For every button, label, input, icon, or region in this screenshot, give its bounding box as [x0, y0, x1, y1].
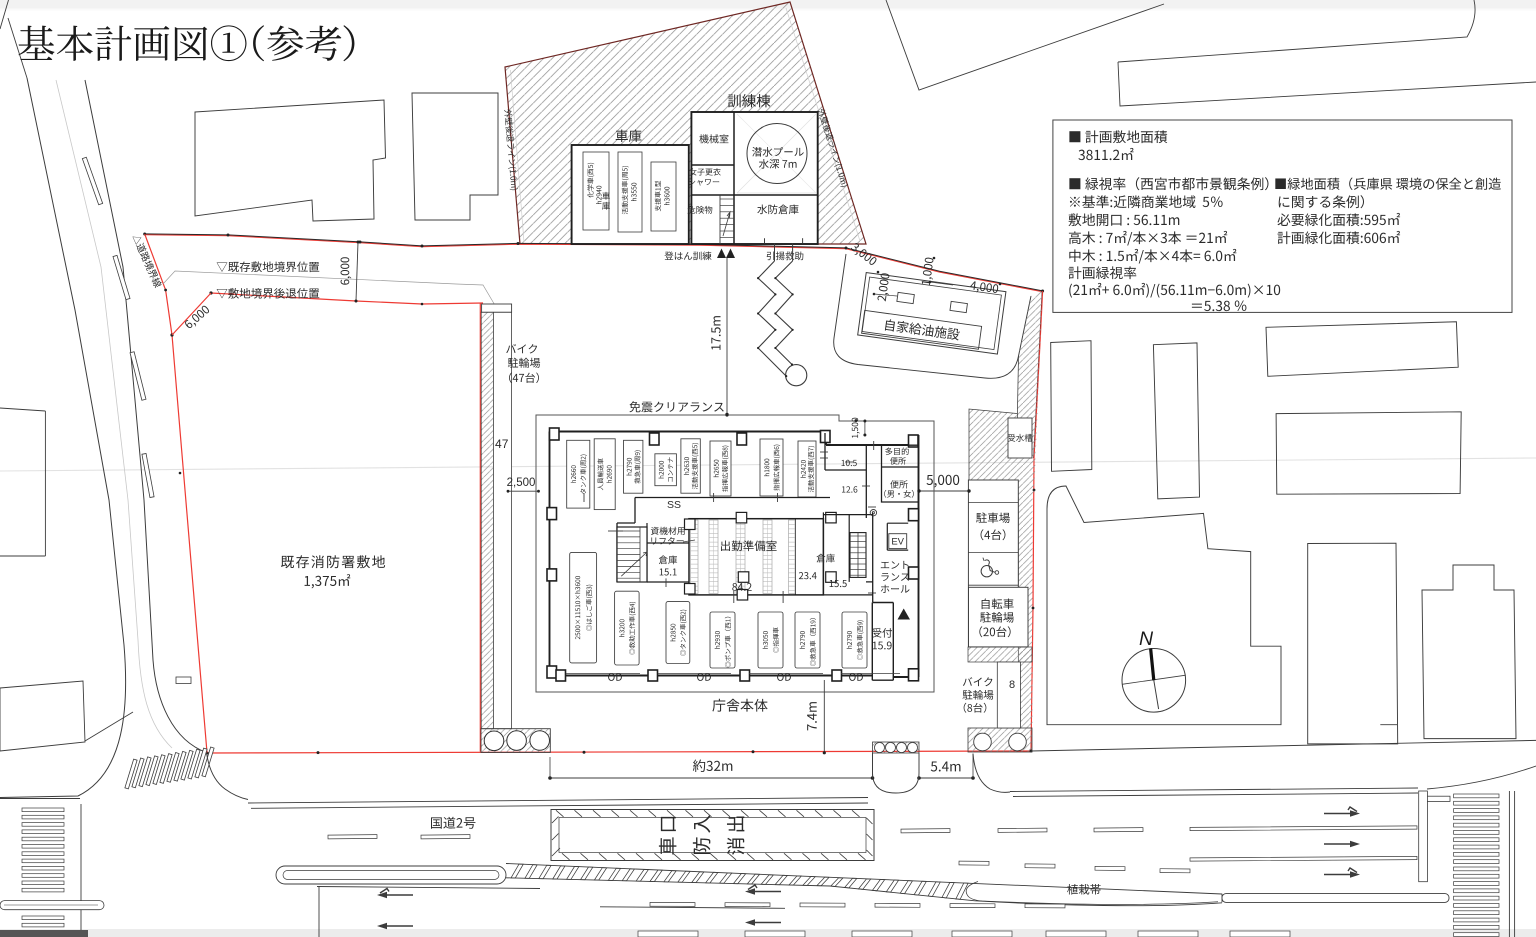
svg-text:8: 8 [1009, 679, 1015, 691]
svg-text:2,500: 2,500 [507, 477, 536, 489]
svg-text:N: N [1139, 628, 1154, 650]
svg-text:SS: SS [667, 499, 681, 511]
svg-text:47: 47 [495, 437, 509, 451]
svg-text:EV: EV [891, 537, 904, 548]
